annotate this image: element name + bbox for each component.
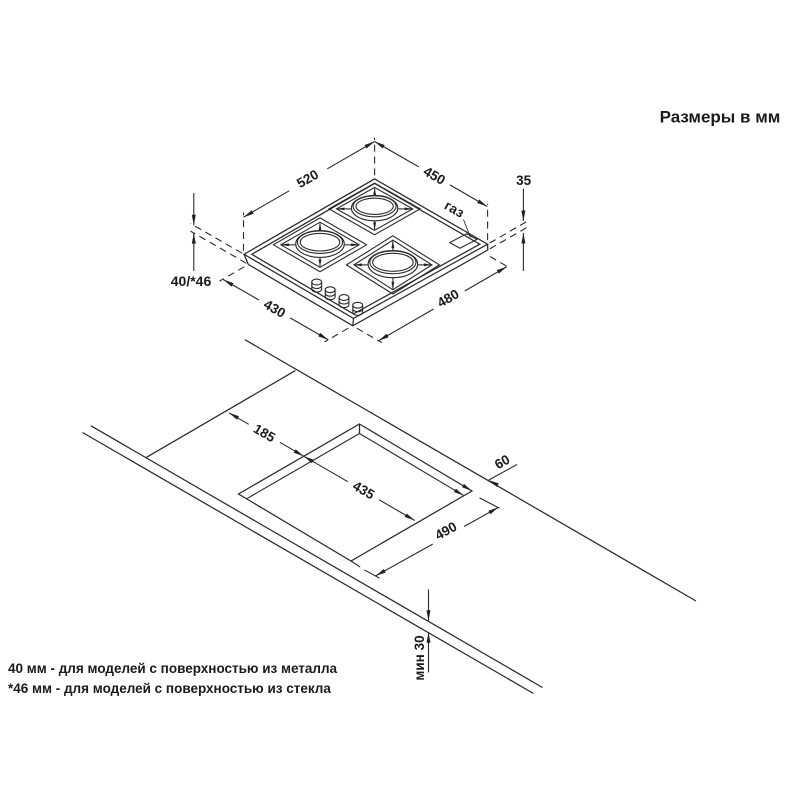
svg-text:40 мм - для моделей с поверхно: 40 мм - для моделей с поверхностью из ме… xyxy=(8,661,338,676)
svg-text:435: 435 xyxy=(350,478,377,502)
svg-text:450: 450 xyxy=(421,164,448,188)
svg-text:мин 30: мин 30 xyxy=(412,635,427,680)
svg-text:480: 480 xyxy=(435,286,462,310)
svg-text:520: 520 xyxy=(294,167,321,191)
svg-text:430: 430 xyxy=(261,297,288,321)
svg-text:*46 мм - для моделей с поверхн: *46 мм - для моделей с поверхностью из с… xyxy=(8,681,331,696)
svg-text:185: 185 xyxy=(251,421,278,445)
svg-text:Размеры в мм: Размеры в мм xyxy=(660,107,781,126)
svg-text:490: 490 xyxy=(432,519,459,543)
svg-text:40/*46: 40/*46 xyxy=(171,273,212,289)
svg-text:35: 35 xyxy=(516,173,532,188)
svg-text:газ: газ xyxy=(442,198,467,221)
